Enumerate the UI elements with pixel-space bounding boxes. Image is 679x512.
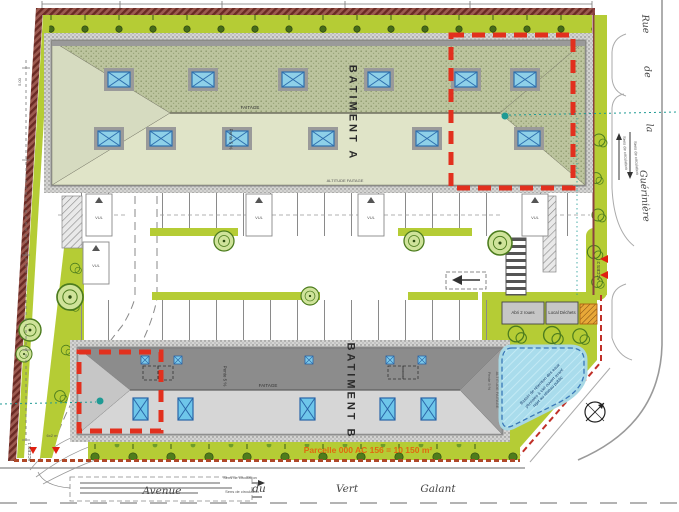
building-a-altitude-label: ALTITUDE FAITAGE (327, 179, 364, 183)
stall-label-5: VUL (92, 264, 100, 268)
stall-label-1: VUL (95, 216, 103, 220)
direction-label-avenue-2: Sens de circulation (225, 490, 259, 494)
stall-label-3: VUL (367, 216, 375, 220)
avenue-word-4: Galant (420, 484, 455, 495)
avenue-word-1: Avenue (142, 486, 181, 497)
access-2-label: ACCES 2 (597, 261, 602, 280)
access-1-label: ACCES 1 (28, 442, 33, 461)
building-a-ridge-label: FAITAGE (241, 106, 260, 111)
north-arrow-icon (585, 402, 605, 422)
rue-word-2: de (642, 66, 652, 78)
site-plan: BATIMENT A BATIMENT B FAITAGE FAITAGE Pe… (0, 0, 679, 512)
bike-shelter-label: Abri 2 roues (511, 311, 534, 315)
building-a (44, 33, 593, 193)
avenue-word-3: Vert (336, 484, 358, 495)
stall-label-2: VUL (255, 216, 263, 220)
dimension-label: 5.00 (18, 78, 22, 86)
rue-word-1: Rue (640, 14, 651, 34)
stall-label-4: VUL (531, 216, 539, 220)
building-a-label: BATIMENT A (347, 65, 358, 162)
building-b-slope-label: Pente 5 % (222, 366, 227, 387)
building-b-altitude-label: ALTITUDE FAITAGE (495, 372, 499, 409)
building-b (70, 340, 510, 442)
gate-size-label: 6x2 m (47, 434, 58, 438)
building-a-slope-label: Pente 5 % (228, 129, 233, 150)
waste-room-label: Local Déchets (548, 311, 575, 315)
parcel-label: Parcelle 000 AC 156 = 10 150 m² (304, 446, 432, 455)
rue-word-3: la (644, 123, 654, 132)
direction-label-avenue-1: Sens de circulation (223, 476, 257, 480)
building-b-slope-label-2: Pente 5 % (487, 372, 491, 390)
building-b-ridge-label: FAITAGE (259, 384, 278, 389)
building-b-label: BATIMENT B (345, 342, 356, 439)
plan-drawing (0, 0, 679, 512)
